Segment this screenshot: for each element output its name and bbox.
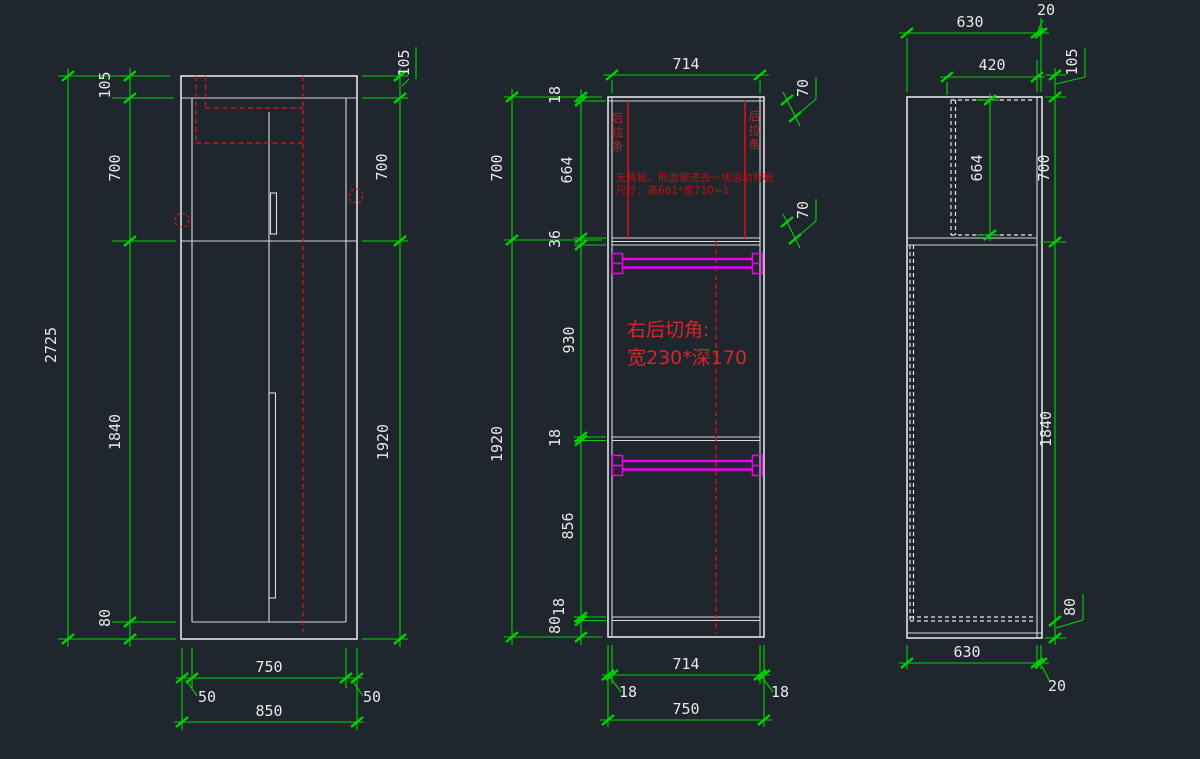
section-dims-inner-chain: 18 664 36 930 18 856 18 80 [546,86,606,645]
dim-chain-bottom-shelf: 18 [550,598,568,616]
section-view: 无背板，前面塞进去一块活动背板 尺寸：高661*宽710=1 右后切角: 宽23… [488,55,816,727]
dim-side-upper: 700 [1035,154,1053,181]
side-dims-bottom: 630 20 [899,643,1066,695]
dim-front-total-height: 2725 [42,327,60,363]
dim-side-crown: 105 [1063,48,1081,75]
dim-flag-upper: 70 [794,79,812,97]
dim-side-front-gap-bottom: 20 [1048,677,1066,695]
side-hidden-back-panel [951,100,1034,235]
dim-side-lower: 1840 [1037,411,1055,447]
section-dim-top: 714 [603,55,769,93]
dim-front-overhang-right: 50 [363,688,381,706]
hinge-mark-left [175,213,189,227]
section-dims-bottom: 714 18 18 750 [600,645,789,727]
dim-side-base: 80 [1061,598,1079,616]
dim-side-back-panel-height: 664 [968,154,986,181]
front-dims-left: 2725 105 700 1840 80 [42,68,176,647]
rear-pull-strips [628,101,745,238]
dim-front-inner-width: 750 [255,658,282,676]
dim-chain-upper-cavity: 664 [558,156,576,183]
front-dims-right: 105 700 1920 [362,47,416,647]
dim-front-right-upper: 700 [373,153,391,180]
dim-front-total-width: 850 [255,702,282,720]
rear-strip-label-right: 后拉条 [747,110,760,152]
cad-model-space: 2725 105 700 1840 80 105 700 1920 [0,0,1200,759]
dim-side-depth-top: 630 [956,13,983,31]
dim-chain-lower-cavity: 856 [559,512,577,539]
front-doors [269,112,277,622]
dim-section-side-right: 18 [771,683,789,701]
side-view: 664 630 20 420 [899,1,1085,695]
dim-front-upper: 700 [106,154,124,181]
side-dim-back-panel-height: 664 [968,94,1000,241]
hanging-rail-lower [613,456,763,476]
back-panel-note-line2: 尺寸：高661*宽710=1 [616,184,729,197]
front-view: 2725 105 700 1840 80 105 700 1920 [42,47,416,730]
dim-side-depth-bottom: 630 [953,643,980,661]
section-dims-outer-chain: 700 1920 [488,89,602,645]
side-hidden-lower [910,245,1035,621]
front-dims-bottom: 750 50 50 850 [174,648,381,730]
dim-front-right-top: 105 [395,49,413,76]
section-flag-lower: 70 [781,199,816,248]
dim-side-front-gap-top: 20 [1037,1,1055,19]
back-panel-note-line1: 无背板，前面塞进去一块活动背板 [616,171,774,184]
dim-chain-top-panel: 18 [546,86,564,104]
dim-chain-base: 80 [546,616,564,634]
corner-cut-note-line1: 右后切角: [627,319,709,341]
hanging-rail-upper [613,254,763,274]
section-flag-upper: 70 [781,77,816,126]
side-dims-top: 630 20 420 [899,1,1055,95]
hinge-mark-right [349,189,363,203]
dim-section-bottom-width: 714 [672,655,699,673]
door-handle-lower [269,393,276,598]
dim-front-overhang-left: 50 [198,688,216,706]
dim-front-lower: 1840 [106,414,124,450]
dim-chain-shelf: 18 [546,429,564,447]
dim-section-outer-lower: 1920 [488,426,506,462]
dim-side-back-panel-offset: 420 [978,56,1005,74]
dim-section-bottom-total: 750 [672,700,699,718]
dim-chain-middle-cavity: 930 [560,326,578,353]
door-handle-upper [271,193,277,234]
dim-front-right-lower: 1920 [374,424,392,460]
dim-section-side-left: 18 [619,683,637,701]
corner-cut-note-line2: 宽230*深170 [627,347,747,369]
dim-chain-double-shelf: 36 [546,230,564,248]
dim-front-top-rail: 105 [96,71,114,98]
dim-section-outer-upper: 700 [488,154,506,181]
cad-drawing: 2725 105 700 1840 80 105 700 1920 [0,0,1200,759]
dim-section-top-width: 714 [672,55,699,73]
rear-strip-label-left: 后拉条 [610,112,623,154]
dim-flag-lower: 70 [794,201,812,219]
dim-front-base: 80 [96,609,114,627]
